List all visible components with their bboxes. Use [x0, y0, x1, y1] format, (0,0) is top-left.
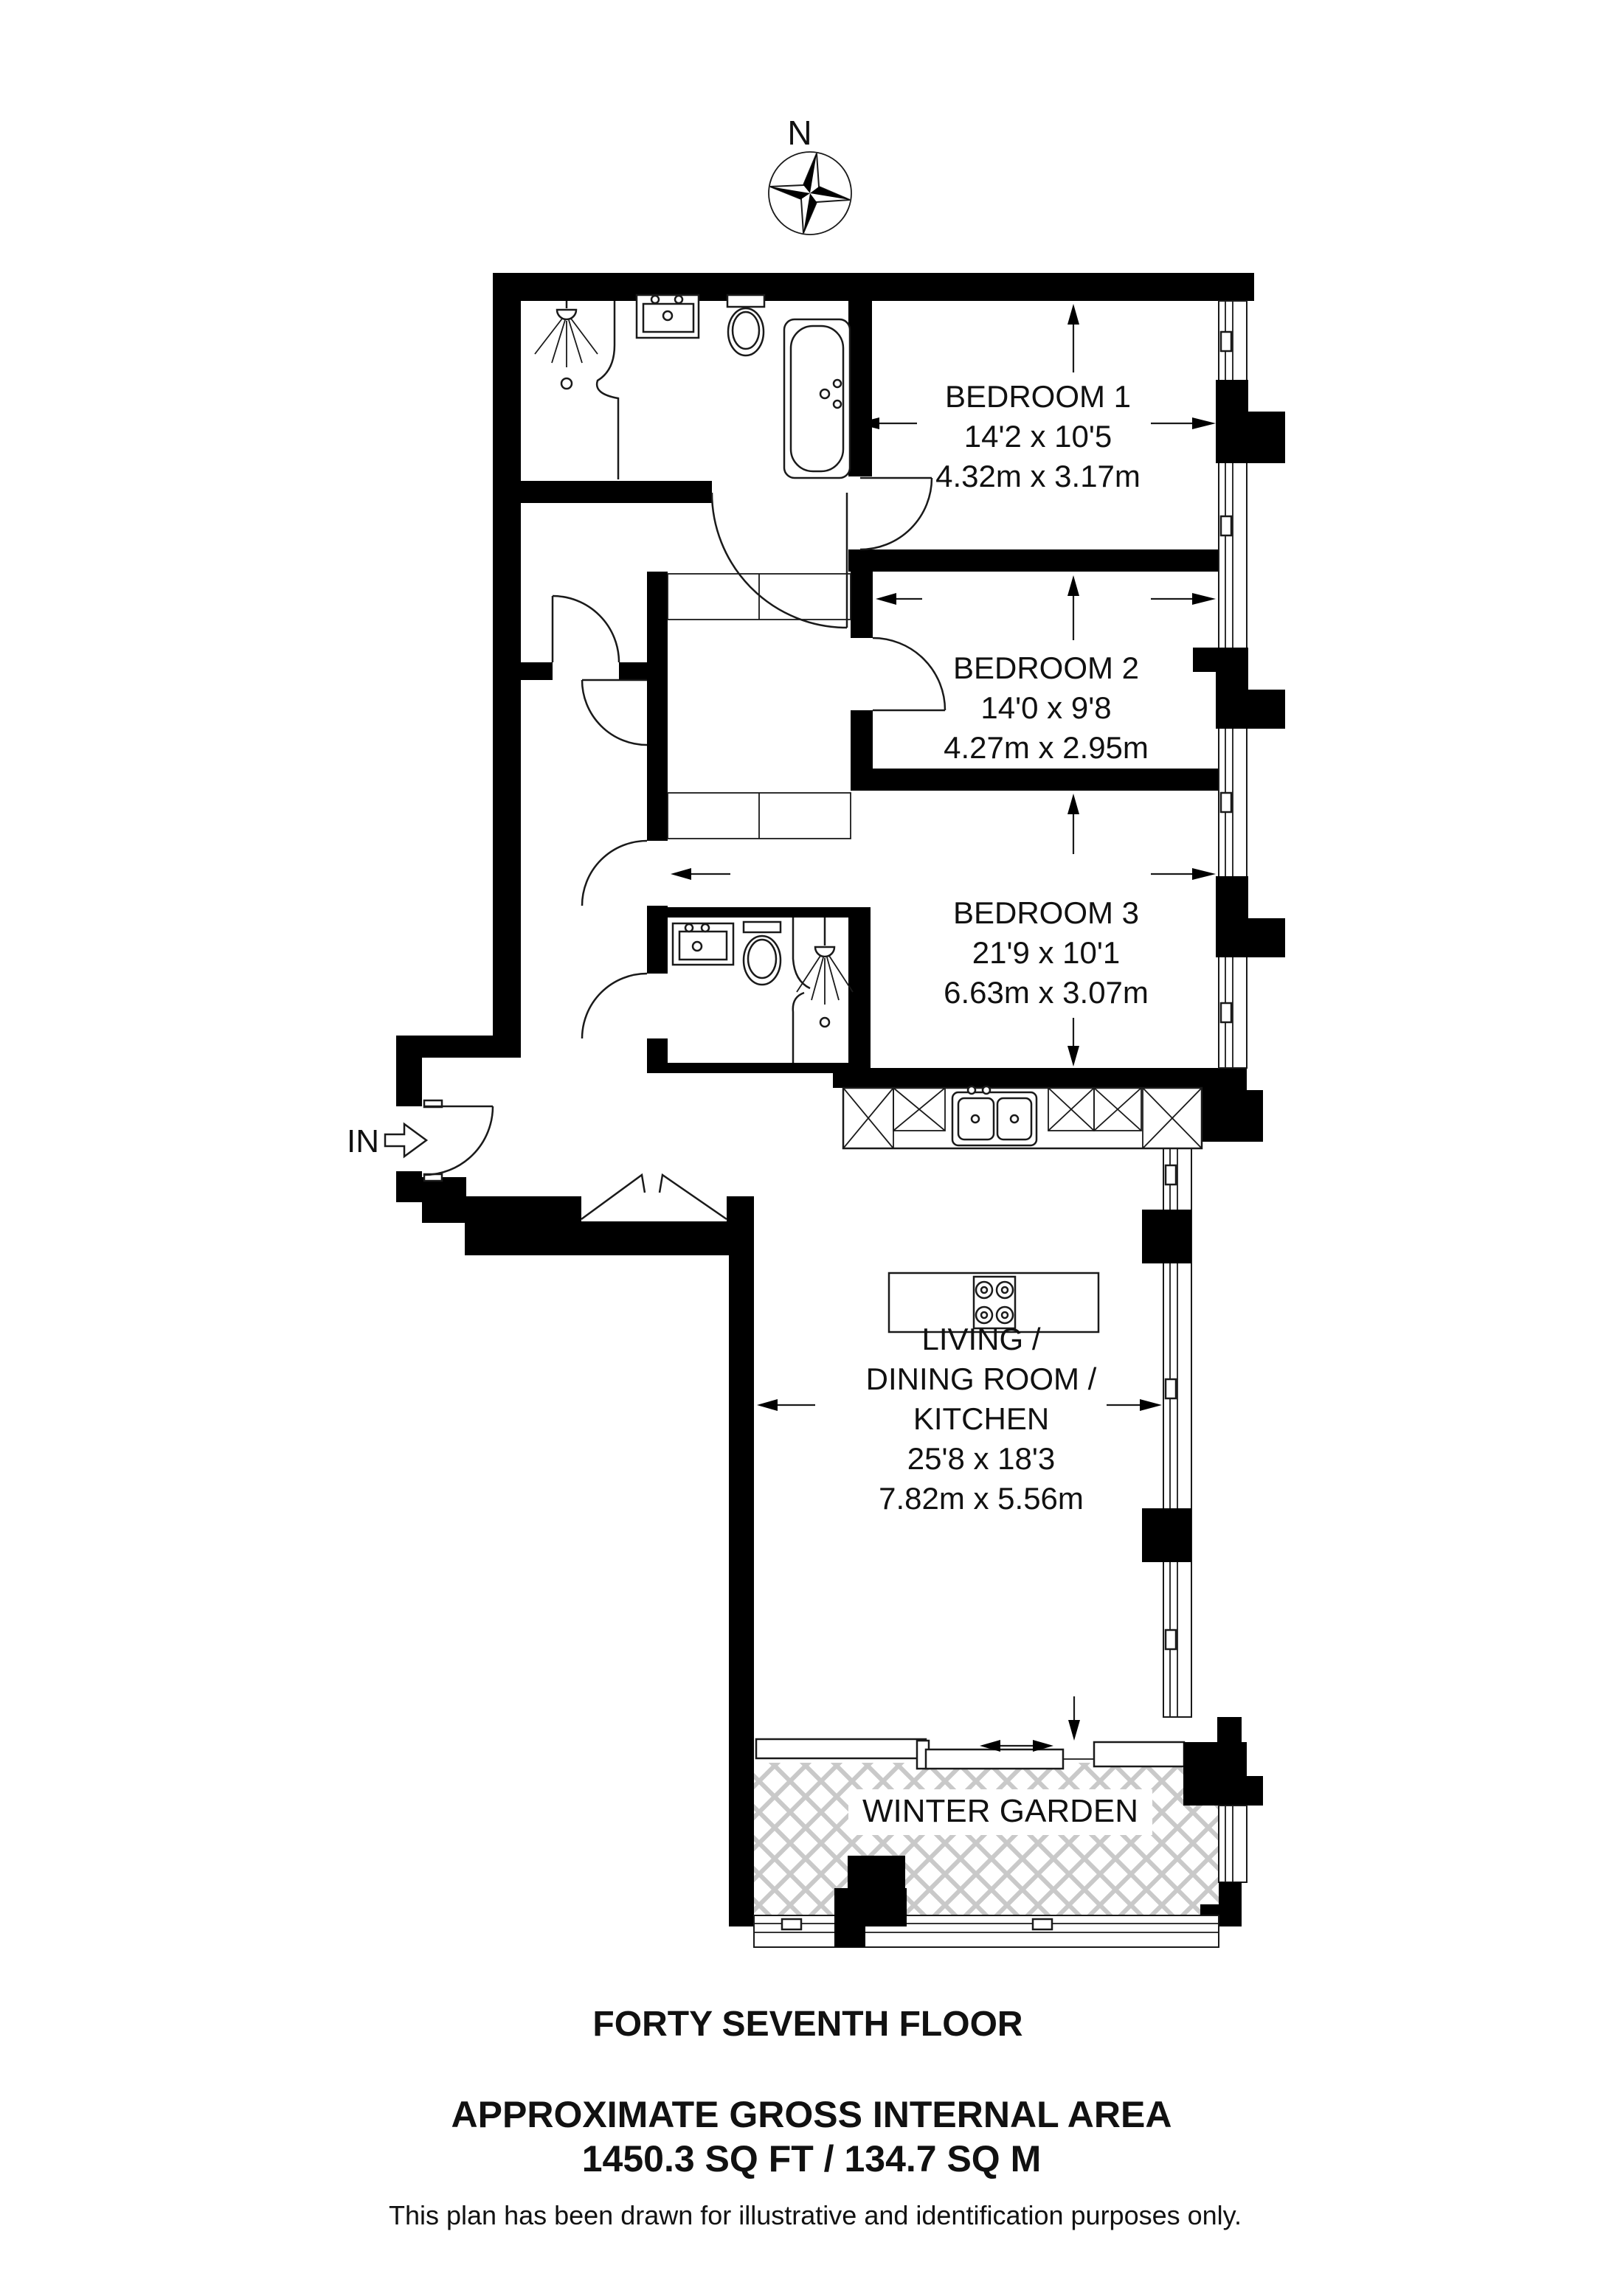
svg-text:14'2 x 10'5: 14'2 x 10'5 — [964, 419, 1112, 454]
bedroom3-label: BEDROOM 3 21'9 x 10'1 6.63m x 3.07m — [944, 895, 1149, 1010]
svg-text:4.27m x 2.95m: 4.27m x 2.95m — [944, 730, 1149, 765]
compass-rose: N — [769, 114, 851, 235]
wardrobes — [668, 574, 851, 839]
toilet2-icon — [744, 922, 781, 985]
compass-north-label: N — [787, 114, 811, 152]
entry-marker: IN — [347, 1123, 426, 1159]
svg-text:LIVING /: LIVING / — [921, 1322, 1040, 1356]
toilet-icon — [727, 295, 764, 356]
area-value: 1450.3 SQ FT / 134.7 SQ M — [582, 2138, 1042, 2179]
interior-walls — [521, 301, 1263, 1142]
living-room-label: LIVING / DINING ROOM / KITCHEN 25'8 x 18… — [866, 1322, 1097, 1516]
disclaimer: This plan has been drawn for illustrativ… — [389, 2200, 1242, 2230]
window-wall-bedrooms — [1193, 301, 1285, 1068]
floor-plan-drawing: N — [0, 0, 1623, 2296]
winter-garden: WINTER GARDEN — [754, 1717, 1263, 1947]
window-wall-living — [1142, 1140, 1191, 1717]
svg-text:BEDROOM 1: BEDROOM 1 — [945, 379, 1131, 414]
svg-text:BEDROOM 3: BEDROOM 3 — [953, 895, 1139, 930]
bathroom1-fixtures — [535, 295, 850, 479]
bedroom2-label: BEDROOM 2 14'0 x 9'8 4.27m x 2.95m — [944, 651, 1149, 765]
entry-in-label: IN — [347, 1123, 379, 1159]
svg-text:BEDROOM 2: BEDROOM 2 — [953, 651, 1139, 685]
winter-garden-label: WINTER GARDEN — [862, 1793, 1138, 1829]
bedroom1-label: BEDROOM 1 14'2 x 10'5 4.32m x 3.17m — [935, 379, 1141, 493]
svg-text:DINING ROOM /: DINING ROOM / — [866, 1362, 1097, 1396]
kitchen-units — [843, 1086, 1202, 1332]
bathtub-icon — [784, 319, 850, 478]
svg-text:14'0 x 9'8: 14'0 x 9'8 — [980, 690, 1111, 725]
footer: FORTY SEVENTH FLOOR APPROXIMATE GROSS IN… — [389, 2005, 1242, 2230]
floor-title: FORTY SEVENTH FLOOR — [592, 2005, 1022, 2044]
svg-text:25'8 x 18'3: 25'8 x 18'3 — [907, 1441, 1056, 1476]
area-title: APPROXIMATE GROSS INTERNAL AREA — [451, 2094, 1172, 2135]
kitchen-sink-icon — [952, 1086, 1037, 1145]
svg-text:6.63m x 3.07m: 6.63m x 3.07m — [944, 975, 1149, 1010]
svg-text:7.82m x 5.56m: 7.82m x 5.56m — [879, 1481, 1084, 1516]
sink-icon — [637, 295, 699, 338]
svg-text:21'9 x 10'1: 21'9 x 10'1 — [972, 935, 1121, 970]
bathroom2-fixtures — [673, 918, 853, 1063]
sink2-icon — [673, 923, 733, 965]
entry-arrow-icon — [385, 1124, 426, 1156]
shower2-icon — [797, 918, 853, 1027]
svg-text:KITCHEN: KITCHEN — [913, 1401, 1049, 1436]
shower-icon — [535, 301, 598, 389]
floor-plan-page: N — [0, 0, 1623, 2296]
svg-text:4.32m x 3.17m: 4.32m x 3.17m — [935, 459, 1141, 493]
